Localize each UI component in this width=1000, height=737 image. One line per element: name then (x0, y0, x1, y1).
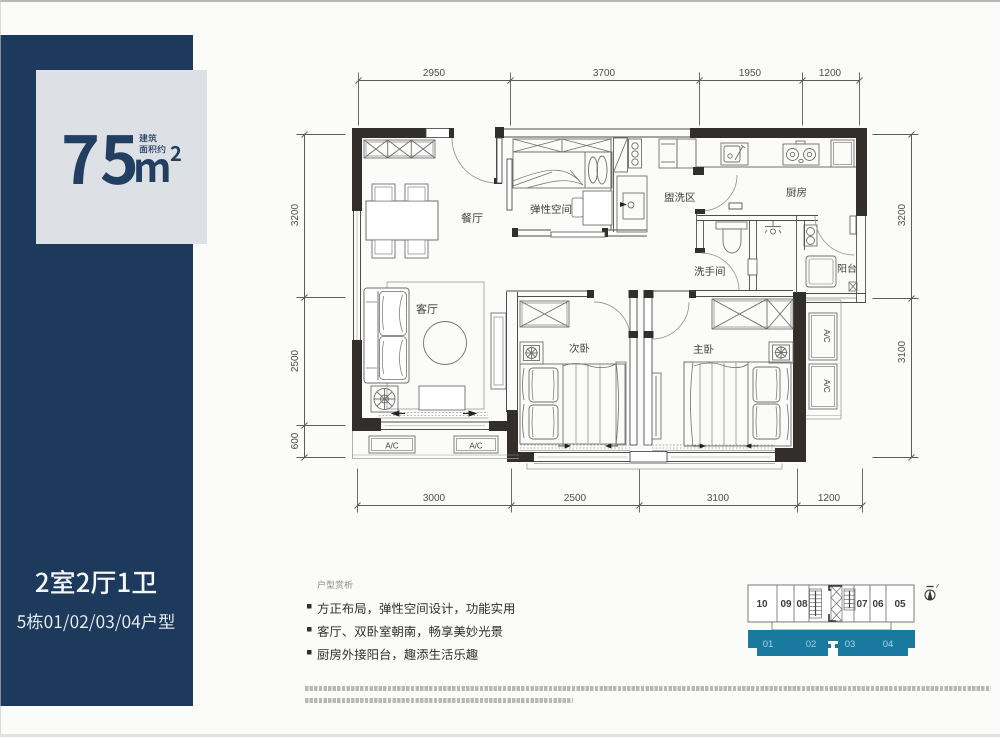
svg-text:3700: 3700 (593, 68, 616, 79)
svg-text:01: 01 (763, 639, 774, 650)
svg-text:2950: 2950 (423, 68, 446, 79)
svg-text:3000: 3000 (423, 493, 446, 504)
svg-text:2500: 2500 (564, 493, 587, 504)
svg-text:3100: 3100 (897, 340, 908, 363)
svg-text:A/C: A/C (822, 379, 831, 393)
svg-text:A/C: A/C (385, 442, 399, 451)
svg-text:3100: 3100 (707, 493, 730, 504)
svg-text:05: 05 (894, 599, 906, 610)
svg-text:600: 600 (290, 432, 301, 449)
svg-text:3200: 3200 (290, 203, 301, 226)
svg-text:10: 10 (756, 599, 768, 610)
svg-text:A/C: A/C (822, 329, 831, 343)
svg-text:08: 08 (796, 599, 808, 610)
svg-text:03: 03 (845, 639, 856, 650)
svg-text:07: 07 (856, 599, 868, 610)
svg-text:1950: 1950 (739, 68, 762, 79)
svg-text:02: 02 (806, 639, 817, 650)
svg-text:A/C: A/C (469, 442, 483, 451)
svg-text:3200: 3200 (897, 203, 908, 226)
svg-text:04: 04 (883, 639, 894, 650)
svg-text:1200: 1200 (818, 493, 841, 504)
svg-text:06: 06 (872, 599, 884, 610)
svg-text:09: 09 (780, 599, 792, 610)
svg-text:2500: 2500 (290, 349, 301, 372)
svg-text:1200: 1200 (819, 68, 842, 79)
